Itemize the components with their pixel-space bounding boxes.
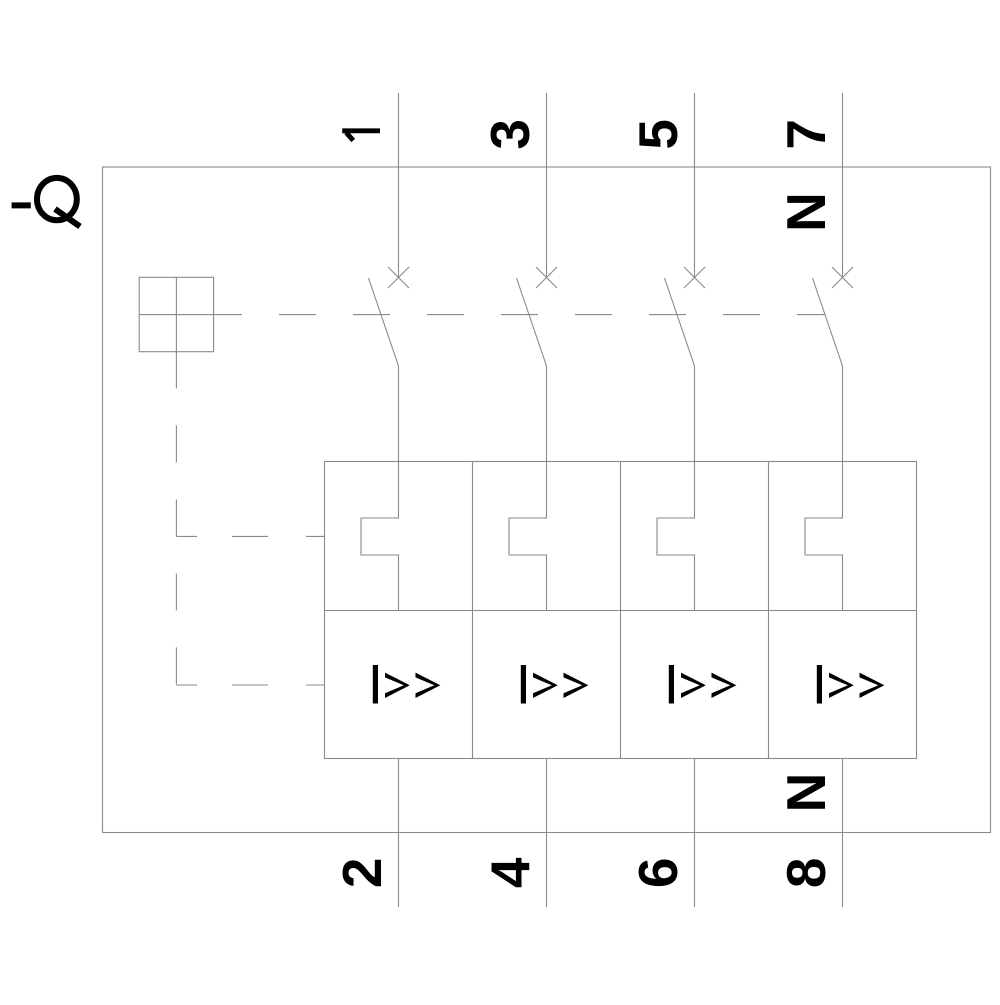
svg-text:N: N — [775, 773, 837, 813]
svg-text:3: 3 — [479, 119, 541, 150]
svg-text:7: 7 — [775, 119, 837, 150]
svg-text:4: 4 — [479, 857, 541, 888]
svg-text:N: N — [775, 192, 837, 232]
svg-text:8: 8 — [775, 858, 837, 889]
svg-text:6: 6 — [627, 858, 689, 889]
svg-text:5: 5 — [627, 119, 689, 150]
svg-text:2: 2 — [331, 858, 393, 889]
